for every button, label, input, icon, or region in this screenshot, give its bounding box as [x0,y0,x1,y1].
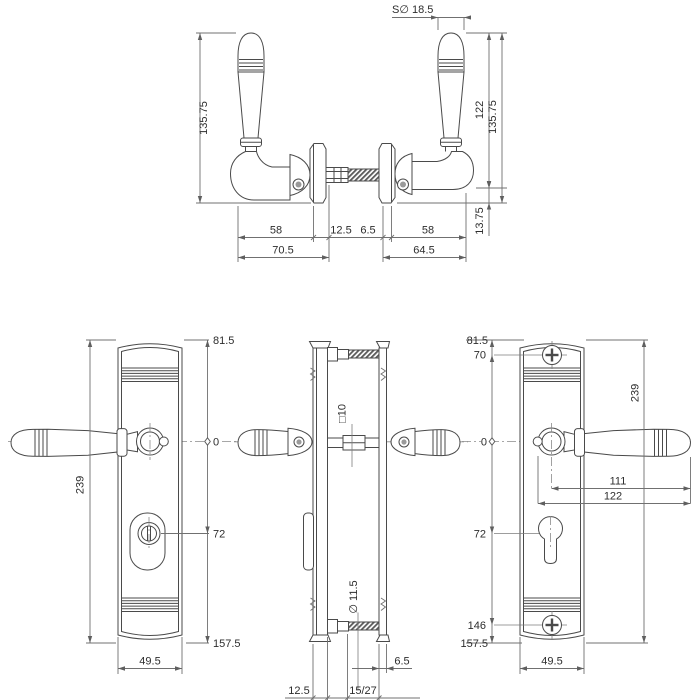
lever-collar [575,429,585,457]
dim-plate-bottom-left: 157.5 [213,638,241,650]
dim-outer-plate-thickness: 6.5 [394,656,409,668]
inner-plate-bar [379,348,387,635]
backplate [118,344,182,640]
screw-thread [349,622,380,630]
dim-plate-width-right: 49.5 [541,656,562,668]
top-connecting-screw-shape [328,348,338,362]
lever-neck [127,432,138,452]
dim-cylinder-right: 72 [474,529,486,541]
guard-bump-edge [304,513,314,570]
lever-neck [564,432,575,452]
dim-total-left: 70.5 [272,245,293,257]
dim-total-right: 64.5 [413,245,434,257]
lever-collar [117,429,127,457]
dim-screw-bottom: 146 [468,620,486,632]
screw-thread [349,350,380,358]
dim-plate-bottom-right: 157.5 [460,638,488,650]
top-connecting-screw-shape [338,350,349,360]
left-lever-shape [296,182,302,188]
left-lever-profile-shape [296,439,301,444]
dim-lever-overall: 122 [604,491,622,503]
dim-spindle-square: □10 [337,404,349,423]
right-lever-shape [400,182,406,188]
dim-rose-left: 12.5 [330,225,351,237]
dim-sphere-diameter: S∅ 18.5 [392,4,433,16]
right-lever-profile [391,428,460,455]
dim-grip-left: 58 [270,225,282,237]
dim-screw-diameter: ∅ 11.5 [348,580,360,613]
dim-plate-top-left: 81.5 [213,335,234,347]
lever-grip [11,429,119,456]
dim-height-to-arm: 122 [474,101,486,119]
dim-plate-height-right: 239 [630,384,642,402]
outer-plate-bar [313,348,328,635]
spindle-edge [328,436,380,451]
rose-grub-screw [159,437,168,446]
right-lever-profile-shape [401,439,406,444]
lever-right [533,428,690,456]
dim-lever-length: 111 [610,476,627,488]
door-handle-dimension-drawing: S∅ 18.5 135.75 122 135.75 [0,0,700,700]
technical-drawing-page: S∅ 18.5 135.75 122 135.75 [0,0,700,700]
lever-grip [583,429,691,456]
cylinder-guard [130,513,165,570]
left-lever-profile [238,428,312,455]
dim-screw-top: 70 [474,350,486,362]
right-rose [379,144,395,204]
dim-arm-to-base: 13.75 [474,207,486,235]
dim-plate-top-right: 81.5 [467,335,488,347]
dim-grip-right: 58 [422,225,434,237]
dim-zero-right: 0 [481,437,487,449]
spindle-boss [326,168,348,183]
rose-grub-screw [533,437,542,446]
left-rose [310,144,326,204]
backplate [520,344,584,640]
dim-plate-width-left: 49.5 [139,656,160,668]
dim-inner-plate-thickness: 12.5 [288,685,309,697]
dim-plate-height-left: 239 [75,476,87,494]
bottom-connecting-screw-shape [338,622,349,632]
dim-clamp-range: 15/27 [349,685,377,697]
bottom-connecting-screw-shape [328,620,338,634]
threaded-spindle [348,169,379,181]
dim-height-left: 135.75 [198,101,210,135]
dim-rose-right: 6.5 [360,225,375,237]
dim-cylinder-left: 72 [213,529,225,541]
dim-zero-left: 0 [213,437,219,449]
dim-height-right: 135.75 [487,100,499,134]
